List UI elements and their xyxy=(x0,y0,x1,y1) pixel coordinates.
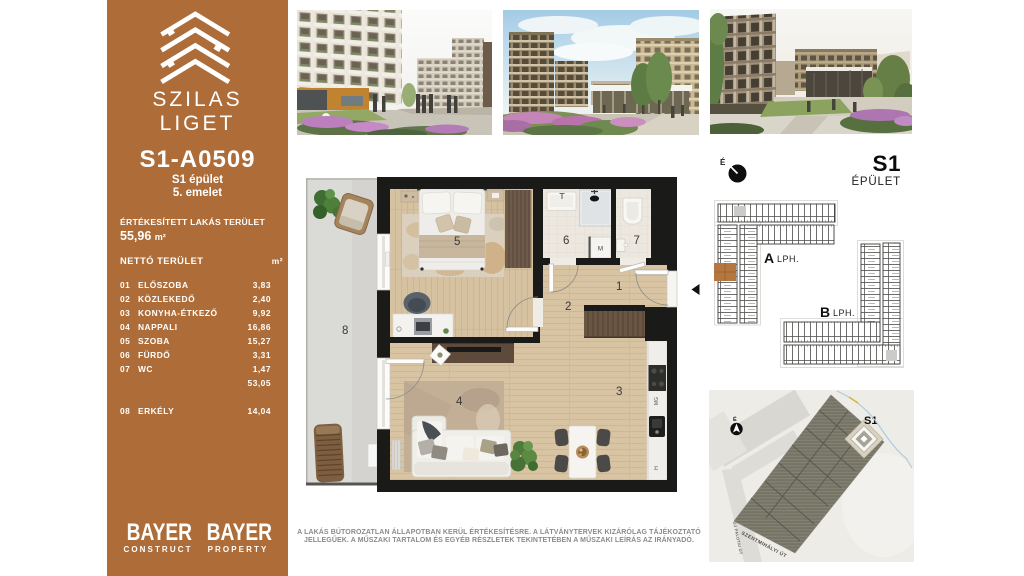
svg-text:M: M xyxy=(598,246,603,253)
svg-text:ÉPÜLET: ÉPÜLET xyxy=(851,175,901,188)
svg-text:S1: S1 xyxy=(872,151,901,176)
svg-text:4: 4 xyxy=(456,396,463,408)
svg-text:1: 1 xyxy=(616,281,622,293)
svg-text:7: 7 xyxy=(634,235,640,247)
svg-text:2: 2 xyxy=(565,301,571,313)
svg-text:B: B xyxy=(820,304,830,320)
svg-text:6: 6 xyxy=(563,235,569,247)
svg-text:5: 5 xyxy=(454,236,460,248)
svg-text:LPH.: LPH. xyxy=(833,308,855,318)
svg-text:3: 3 xyxy=(616,386,622,398)
svg-text:A: A xyxy=(764,250,774,266)
svg-text:É: É xyxy=(720,158,726,167)
svg-text:8: 8 xyxy=(342,325,348,337)
svg-text:H: H xyxy=(654,466,660,470)
svg-text:É: É xyxy=(733,415,737,423)
svg-text:LPH.: LPH. xyxy=(777,254,799,264)
svg-text:MG: MG xyxy=(654,397,660,405)
